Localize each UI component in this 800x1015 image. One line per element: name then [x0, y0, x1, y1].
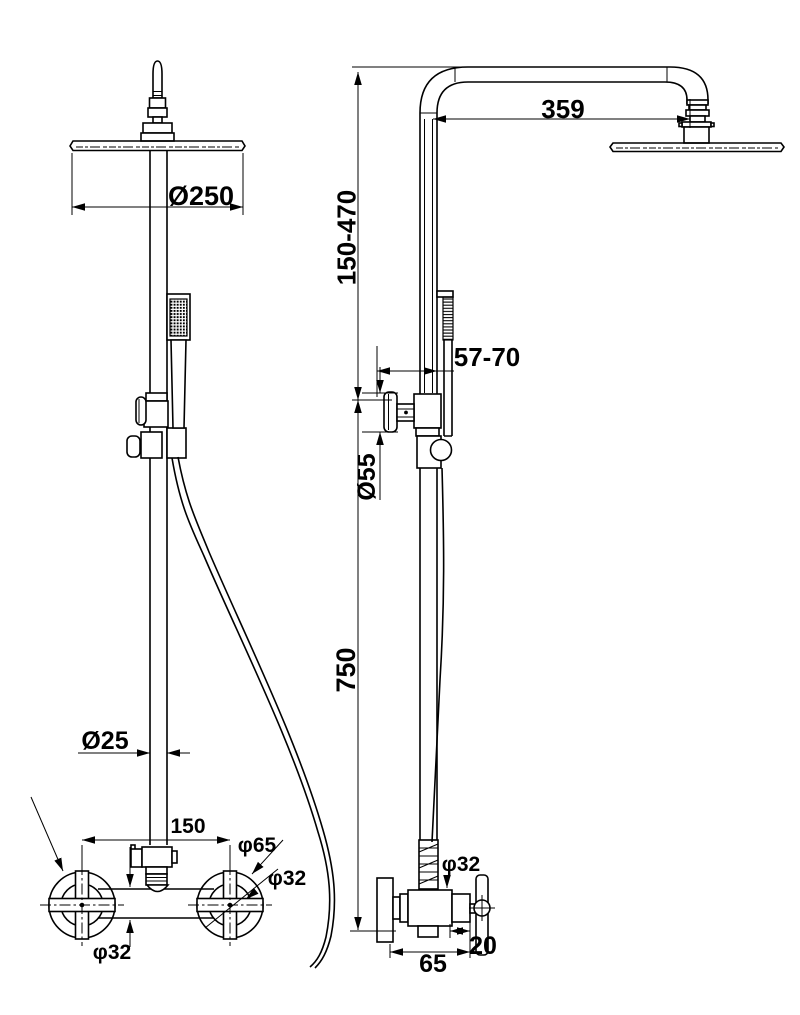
- dim-riser-pipe-diameter: Ø25: [66, 728, 144, 754]
- dim-outlet-offset: 20: [460, 933, 506, 959]
- side-view: [350, 67, 784, 958]
- dim-handle-diameter: φ32: [258, 868, 316, 890]
- leader-left-handle: [31, 797, 63, 871]
- technical-drawing-page: Ø250 359 150-470 57-70 Ø55 750 Ø25 150 φ…: [0, 0, 800, 1015]
- spray-face-side: [443, 297, 453, 340]
- front-dimensions: [31, 153, 283, 947]
- front-hand-shower: [167, 294, 190, 428]
- dim-valve-body-width: 65: [410, 951, 456, 977]
- front-shower-head-plate: [70, 141, 245, 151]
- side-shower-hose: [432, 468, 444, 842]
- side-dimensions: [350, 67, 690, 958]
- dim-lower-riser-height: 750: [332, 638, 360, 702]
- dim-head-diameter: Ø250: [156, 182, 246, 210]
- shower-system-drawing: [0, 0, 800, 1015]
- dim-riser-height-range: 150-470: [334, 183, 361, 293]
- dim-riser-connector-diameter: φ32: [432, 854, 490, 876]
- spray-face: [170, 299, 187, 336]
- front-riser-column: [150, 151, 167, 846]
- front-arm-stub: [141, 61, 174, 141]
- side-shower-head-plate: [610, 143, 784, 152]
- side-slider-bracket: [384, 392, 452, 468]
- dim-handle-flange-diameter: φ65: [228, 835, 286, 857]
- front-mixer-valve: [40, 845, 272, 946]
- dim-bracket-flange-diameter: Ø55: [354, 445, 380, 509]
- dim-valve-inlet-spacing: 150: [158, 816, 218, 838]
- dim-arm-reach: 359: [523, 96, 603, 123]
- dim-wall-offset-range: 57-70: [444, 344, 530, 371]
- dim-valve-body-diameter: φ32: [83, 942, 141, 964]
